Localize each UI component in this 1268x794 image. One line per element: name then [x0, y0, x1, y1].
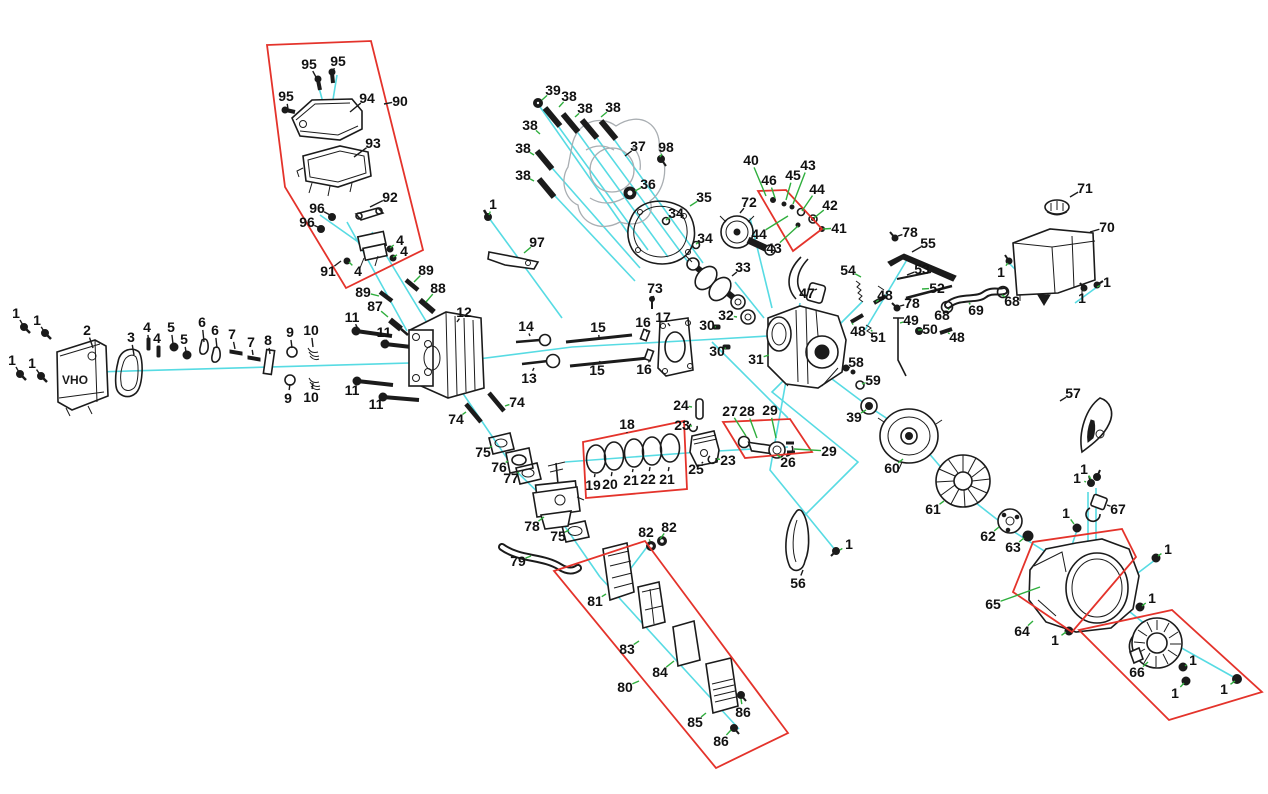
part-number-label: 51 — [870, 329, 886, 345]
part-number-label: 82 — [661, 519, 677, 535]
leader-line — [1090, 229, 1099, 232]
muffler-gasket-drawing — [116, 349, 143, 396]
part-number-label: 7 — [228, 326, 236, 342]
part-number-label: 39 — [846, 409, 862, 425]
part-number-label: 1 — [1062, 505, 1070, 521]
part-number-label: 1 — [1073, 470, 1081, 486]
leader-line — [734, 316, 737, 317]
leader-line — [653, 296, 654, 299]
part-number-label: 79 — [510, 553, 526, 569]
part-number-label: 32 — [718, 307, 734, 323]
part-number-label: 95 — [301, 56, 317, 72]
leader-line — [132, 345, 134, 355]
case-cover-gasket-drawing — [628, 201, 700, 264]
part-number-label: 30 — [699, 317, 715, 333]
part-number-label: 1 — [1051, 632, 1059, 648]
part-number-label: 78 — [904, 295, 920, 311]
part-number-label: 93 — [365, 135, 381, 151]
part-number-label: 65 — [985, 596, 1001, 612]
part-number-label: 84 — [652, 664, 668, 680]
part-number-label: 56 — [790, 575, 806, 591]
leader-line — [1084, 481, 1086, 482]
part-number-label: 90 — [392, 93, 408, 109]
part-number-label: 28 — [739, 403, 755, 419]
part-number-label: 1 — [1189, 652, 1197, 668]
part-number-label: 48 — [877, 287, 893, 303]
part-number-label: 40 — [743, 152, 759, 168]
leader-line — [1071, 519, 1074, 524]
part-number-label: 48 — [949, 329, 965, 345]
part-number-label: 78 — [524, 518, 540, 534]
leader-line — [158, 346, 159, 352]
part-number-label: 43 — [800, 157, 816, 173]
part-number-label: 80 — [617, 679, 633, 695]
part-number-label: 26 — [780, 454, 796, 470]
leader-line — [1061, 632, 1066, 635]
part-number-label: 31 — [748, 351, 764, 367]
part-number-label: 1 — [1078, 290, 1086, 306]
part-number-label: 89 — [355, 284, 371, 300]
part-number-label: 1 — [489, 196, 497, 212]
part-number-label: 8 — [264, 332, 272, 348]
part-number-label: 75 — [550, 528, 566, 544]
leader-line — [370, 201, 383, 207]
part-number-label: 23 — [674, 417, 690, 433]
side-bracket-drawing — [1081, 398, 1112, 452]
part-number-label: 53 — [914, 261, 930, 277]
leader-line — [823, 228, 831, 229]
part-number-label: 10 — [303, 322, 319, 338]
part-number-label: 86 — [713, 733, 729, 749]
valve-hardware-row — [147, 338, 320, 390]
part-number-label: 89 — [418, 262, 434, 278]
leader-line — [840, 548, 842, 550]
part-number-label: 69 — [968, 302, 984, 318]
part-number-label: 34 — [668, 205, 684, 221]
part-number-label: 9 — [286, 324, 294, 340]
leader-line — [185, 347, 186, 352]
piston-drawing — [689, 399, 719, 466]
part-number-label: 1 — [1148, 590, 1156, 606]
part-number-label: 1 — [1080, 461, 1088, 477]
leader-line — [632, 681, 639, 684]
part-number-label: 35 — [696, 189, 712, 205]
leader-line — [172, 335, 173, 344]
part-number-label: 70 — [1099, 219, 1115, 235]
part-number-label: 74 — [509, 394, 525, 410]
part-number-label: 1 — [1103, 274, 1111, 290]
leader-line — [234, 342, 235, 349]
part-number-label: 63 — [1005, 539, 1021, 555]
leader-line — [772, 418, 776, 438]
leader-line — [269, 348, 270, 354]
cylinder-head-drawing — [409, 312, 484, 398]
part-number-label: 62 — [980, 528, 996, 544]
part-number-label: 5 — [180, 331, 188, 347]
part-number-label: 48 — [850, 323, 866, 339]
leader-line — [252, 350, 253, 355]
part-number-label: 38 — [577, 100, 593, 116]
leader-line — [855, 274, 861, 277]
part-number-label: 49 — [903, 312, 919, 328]
part-number-label: 91 — [320, 263, 336, 279]
part-number-label: 1 — [845, 536, 853, 552]
part-number-label: 73 — [647, 280, 663, 296]
part-number-label: 58 — [848, 354, 864, 370]
part-number-label: 95 — [330, 53, 346, 69]
part-number-label: 11 — [369, 396, 384, 412]
leader-line — [312, 338, 313, 347]
part-number-label: 1 — [33, 312, 41, 328]
part-number-label: 71 — [1077, 180, 1093, 196]
part-number-label: 42 — [822, 197, 838, 213]
leader-line — [384, 102, 392, 104]
rocker-arm-drawing — [356, 208, 383, 220]
part-number-label: 38 — [561, 88, 577, 104]
part-number-label: 4 — [153, 330, 161, 346]
part-number-label: 17 — [655, 309, 671, 325]
part-number-label: 1 — [1171, 685, 1179, 701]
part-number-label: 66 — [1129, 664, 1145, 680]
part-number-label: 54 — [840, 262, 856, 278]
part-number-label: 43 — [766, 240, 782, 256]
part-number-label: 94 — [359, 90, 375, 106]
leader-line — [287, 104, 288, 109]
part-number-label: 22 — [640, 471, 656, 487]
part-number-label: 1 — [1164, 541, 1172, 557]
part-number-label: 4 — [143, 319, 151, 335]
part-number-label: 86 — [735, 704, 751, 720]
part-number-label: 11 — [377, 324, 392, 340]
part-number-label: 37 — [630, 138, 646, 154]
leader-line — [324, 212, 330, 215]
cooling-fan-drawing — [936, 455, 990, 507]
part-number-label: 34 — [697, 230, 713, 246]
part-number-label: 15 — [590, 319, 606, 335]
part-number-label: 9 — [284, 390, 292, 406]
part-number-label: 92 — [382, 189, 398, 205]
part-number-label: 44 — [809, 181, 825, 197]
part-number-label: 85 — [687, 714, 703, 730]
part-number-label: 60 — [884, 460, 900, 476]
leader-line — [371, 294, 379, 296]
part-number-label: 27 — [722, 403, 738, 419]
leader-line — [349, 262, 352, 265]
part-number-label: 38 — [515, 140, 531, 156]
part-number-label: 25 — [688, 461, 704, 477]
part-number-label: 38 — [522, 117, 538, 133]
starter-cup-drawing — [998, 509, 1033, 541]
part-number-label: 5 — [167, 319, 175, 335]
leader-line — [766, 216, 788, 230]
leader-line — [291, 340, 292, 348]
part-number-label: 59 — [865, 372, 881, 388]
part-number-label: 7 — [247, 334, 255, 350]
air-guide-drawing — [786, 510, 840, 571]
part-number-label: 83 — [619, 641, 635, 657]
part-number-label: 4 — [354, 263, 362, 279]
air-filter-drawing — [603, 537, 746, 735]
part-number-label: 3 — [127, 329, 135, 345]
part-number-label: 29 — [762, 402, 778, 418]
leader-line — [1180, 683, 1184, 687]
part-number-label: 21 — [659, 471, 675, 487]
pushrod-tubes-drawing — [466, 393, 504, 422]
part-number-label: 24 — [673, 397, 689, 413]
leader-line — [386, 340, 387, 342]
leader-line — [1158, 554, 1161, 556]
part-number-label: 21 — [623, 472, 639, 488]
part-number-label: 1 — [997, 264, 1005, 280]
part-number-label: 11 — [345, 309, 360, 325]
part-number-label: 74 — [448, 411, 464, 427]
part-number-label: 82 — [638, 524, 654, 540]
leader-line — [772, 188, 775, 198]
part-number-label: 14 — [518, 318, 534, 334]
leader-line — [814, 289, 817, 290]
part-number-label: 13 — [521, 370, 537, 386]
part-number-label: 16 — [636, 361, 652, 377]
part-number-label: 46 — [761, 172, 777, 188]
leader-line — [689, 406, 692, 407]
muffler-ohv-text: OHV — [62, 373, 88, 387]
part-number-label: 95 — [278, 88, 294, 104]
part-number-label: 88 — [430, 280, 446, 296]
part-number-label: 23 — [720, 452, 736, 468]
part-number-label: 47 — [799, 285, 815, 301]
part-number-label: 98 — [658, 139, 674, 155]
part-number-label: 64 — [1014, 623, 1030, 639]
leader-line — [802, 196, 812, 211]
part-number-label: 29 — [821, 443, 837, 459]
part-number-label: 78 — [902, 224, 918, 240]
leader-line — [1185, 665, 1187, 666]
leader-line — [1006, 263, 1008, 266]
part-number-label: 68 — [1004, 293, 1020, 309]
part-number-label: 18 — [619, 416, 635, 432]
part-number-label: 52 — [929, 280, 945, 296]
part-number-label: 1 — [12, 305, 20, 321]
part-number-label: 12 — [456, 304, 472, 320]
part-number-label: 45 — [785, 167, 801, 183]
part-number-label: 68 — [934, 307, 950, 323]
part-number-label: 10 — [303, 389, 319, 405]
part-number-label: 96 — [299, 214, 315, 230]
part-number-label: 15 — [589, 362, 605, 378]
part-number-label: 87 — [367, 298, 383, 314]
part-number-label: 50 — [922, 321, 938, 337]
part-number-label: 72 — [741, 194, 757, 210]
part-number-label: 38 — [515, 167, 531, 183]
part-number-label: 39 — [545, 82, 561, 98]
part-number-label: 77 — [503, 470, 519, 486]
muffler-drawing: OHV — [57, 340, 108, 416]
part-number-label: 19 — [585, 477, 601, 493]
part-number-label: 20 — [602, 476, 618, 492]
part-number-label: 2 — [83, 322, 91, 338]
valve-cover-drawing — [282, 69, 362, 140]
part-number-label: 97 — [529, 234, 545, 250]
recoil-starter-drawing — [1129, 618, 1182, 668]
part-number-labels: 1111234455667789910101111111187898988959… — [8, 53, 1228, 749]
part-number-label: 57 — [1065, 385, 1081, 401]
part-number-label: 6 — [198, 314, 206, 330]
part-number-label: 1 — [28, 355, 36, 371]
part-number-label: 61 — [925, 501, 941, 517]
piston-rings-drawing — [587, 434, 680, 473]
exploded-engine-parts-diagram: OHV — [0, 0, 1268, 794]
part-number-label: 41 — [831, 220, 847, 236]
part-number-label: 81 — [587, 593, 603, 609]
part-number-label: 6 — [211, 322, 219, 338]
part-number-label: 44 — [751, 226, 767, 242]
part-number-label: 67 — [1110, 501, 1126, 517]
part-number-label: 1 — [8, 352, 16, 368]
part-number-label: 36 — [640, 176, 656, 192]
part-number-label: 4 — [400, 243, 408, 259]
leader-line — [794, 449, 821, 451]
part-number-label: 30 — [709, 343, 725, 359]
part-number-label: 1 — [1220, 681, 1228, 697]
part-number-label: 38 — [605, 99, 621, 115]
part-number-label: 55 — [920, 235, 936, 251]
part-number-label: 11 — [345, 382, 360, 398]
part-number-label: 16 — [635, 314, 651, 330]
part-number-label: 75 — [475, 444, 491, 460]
guide-bracket-drawing — [488, 252, 538, 269]
part-number-label: 33 — [735, 259, 751, 275]
